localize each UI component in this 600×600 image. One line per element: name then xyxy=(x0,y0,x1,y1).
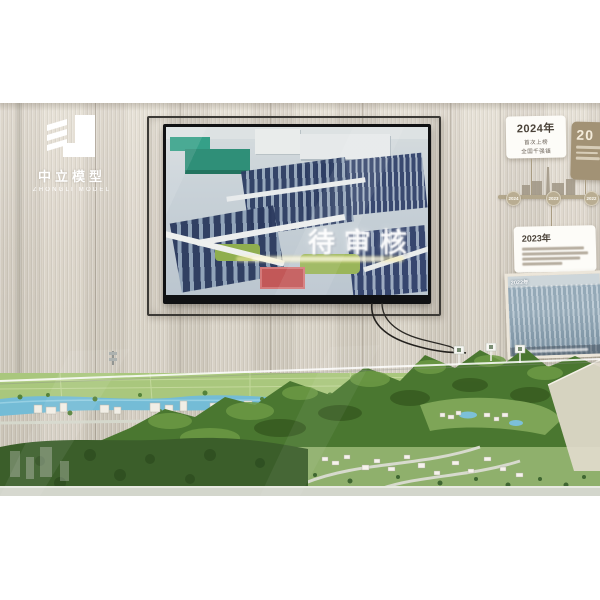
timeline-stem xyxy=(551,206,552,226)
timeline-card-2024: 2024年 首次上榜 全国千强镇 xyxy=(506,115,567,158)
photo-content: 中立模型 ZHONGLI MODEL xyxy=(0,103,600,496)
fine-print-blurred xyxy=(522,262,562,265)
fine-print-blurred xyxy=(576,146,600,149)
timeline-node-2022: 2022 xyxy=(584,191,599,206)
fine-print-blurred xyxy=(522,256,580,260)
timeline-card-2023: 2023年 xyxy=(514,225,597,273)
tv-video-frame: 待审核 xyxy=(166,127,428,295)
tv-screen: 待审核 xyxy=(163,124,431,304)
timeline-card-2024-year: 2024年 xyxy=(506,119,566,136)
timeline-card-partial-label: 20 xyxy=(576,127,600,144)
timeline-card-2024-line2: 全国千强镇 xyxy=(506,146,566,155)
scale-model xyxy=(0,343,600,496)
logo-text-en: ZHONGLI MODEL xyxy=(16,187,128,193)
logo-text-cn: 中立模型 xyxy=(16,166,128,185)
timeline-node-2023: 2023 xyxy=(546,191,561,206)
fine-print-blurred xyxy=(576,151,598,154)
fine-print-blurred xyxy=(576,157,600,160)
fine-print-blurred xyxy=(522,246,584,250)
photo-2022-label: 2022年 xyxy=(511,278,529,287)
building-logo-icon xyxy=(37,113,107,159)
screen-glare xyxy=(166,127,428,295)
top-margin xyxy=(0,0,600,103)
fine-print-blurred xyxy=(522,251,588,255)
timeline-node-2024: 2024 xyxy=(506,191,521,206)
timeline-card-2024-line1: 首次上榜 xyxy=(506,137,566,146)
timeline-card-2023-year: 2023年 xyxy=(522,230,596,245)
zhongli-model-logo: 中立模型 ZHONGLI MODEL xyxy=(16,113,128,193)
exhibition-room-photo: 中立模型 ZHONGLI MODEL xyxy=(0,0,600,600)
bottom-margin xyxy=(0,496,600,600)
